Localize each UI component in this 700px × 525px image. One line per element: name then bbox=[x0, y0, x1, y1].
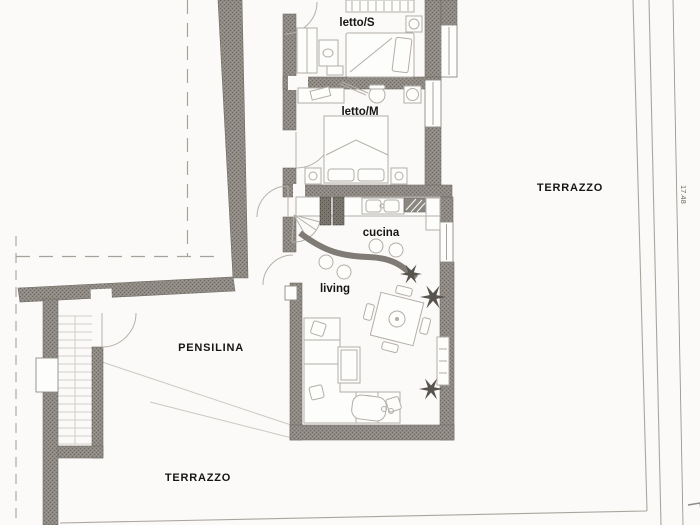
chair-square bbox=[404, 86, 421, 103]
radiator-letto-s bbox=[346, 0, 414, 12]
staircase bbox=[58, 316, 92, 444]
radiator-living bbox=[437, 337, 449, 385]
wall-letto-s-right bbox=[425, 0, 441, 80]
wall-cucina-right-upper bbox=[440, 197, 453, 222]
opening-stair-door bbox=[91, 289, 113, 312]
dining-set bbox=[357, 279, 437, 359]
coffee-table bbox=[338, 347, 360, 383]
window-stair bbox=[36, 358, 58, 392]
label-cucina: cucina bbox=[363, 227, 400, 239]
wall-stair-left-lower bbox=[43, 392, 58, 525]
label-living: living bbox=[320, 283, 350, 295]
furniture-letto-m bbox=[298, 82, 421, 184]
furniture-cucina bbox=[296, 197, 440, 284]
label-letto-s: letto/S bbox=[339, 17, 374, 29]
nightstand-left bbox=[305, 168, 321, 184]
wall-stair-bottom-cap bbox=[58, 446, 103, 458]
bed-single bbox=[346, 33, 414, 77]
door-arc-hall bbox=[263, 255, 293, 285]
terrace-edge-bottom bbox=[60, 511, 647, 523]
wall-living-bottom bbox=[290, 425, 454, 440]
window-pillar bbox=[441, 25, 457, 77]
wall-apartment-left-c bbox=[283, 217, 296, 252]
nightstand-right bbox=[391, 168, 407, 184]
pensilina-canopy-lines bbox=[102, 362, 300, 440]
dimension-label: 17.48 bbox=[679, 185, 688, 204]
window-cucina bbox=[440, 222, 453, 262]
label-letto-m: letto/M bbox=[341, 106, 378, 118]
floor-plan-canvas: 17.48 bbox=[0, 0, 700, 525]
label-pensilina: PENSILINA bbox=[178, 342, 244, 354]
wall-boundary-left-diagonal bbox=[218, 0, 248, 278]
label-terrazzo-right: TERRAZZO bbox=[537, 182, 603, 194]
floor-plan-drawing: 17.48 bbox=[0, 0, 700, 525]
window-letto-m bbox=[425, 80, 441, 127]
chair-round bbox=[369, 85, 385, 103]
wall-living-left bbox=[290, 283, 302, 440]
dimension-terrace-length: 17.48 bbox=[673, 0, 688, 525]
corner-sink bbox=[406, 16, 422, 32]
canopy-line-1 bbox=[102, 362, 300, 428]
kitchen-cabinet bbox=[426, 198, 440, 230]
wall-stair-right bbox=[92, 347, 103, 458]
wardrobe bbox=[297, 28, 317, 73]
desk-letto-s bbox=[319, 40, 343, 75]
door-stair bbox=[102, 313, 136, 347]
kitchen-stove bbox=[404, 198, 426, 212]
opening-hall bbox=[293, 184, 305, 198]
label-terrazzo-bottom: TERRAZZO bbox=[165, 472, 231, 484]
furniture-living bbox=[304, 279, 449, 423]
terrace-edge-outer bbox=[649, 0, 661, 525]
terrace-edge-inner bbox=[633, 0, 647, 511]
wall-end-cap bbox=[285, 286, 297, 300]
wall-stair-left-upper bbox=[43, 299, 58, 359]
dimension-line bbox=[673, 0, 683, 525]
terrace-corner-mark bbox=[688, 503, 700, 516]
bed-double bbox=[324, 116, 388, 183]
wall-partition-lettom-cucina bbox=[283, 185, 452, 197]
wall-pillar-top-right bbox=[441, 0, 457, 25]
wall-apartment-left-a bbox=[283, 14, 296, 130]
wall-boundary-bottom-left bbox=[18, 277, 235, 302]
